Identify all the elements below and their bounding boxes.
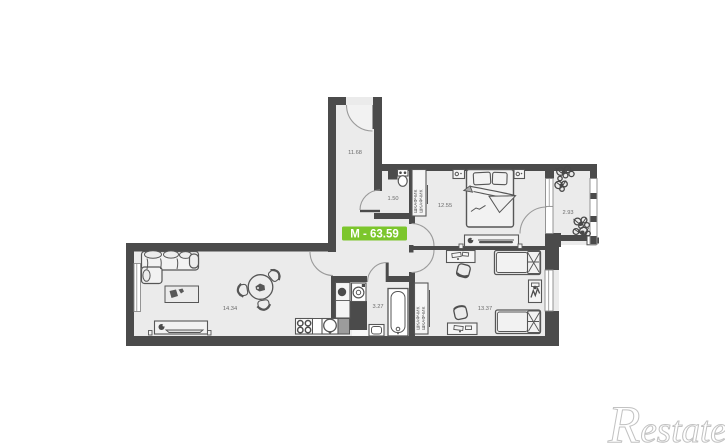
svg-text:1.50: 1.50 bbox=[387, 196, 398, 202]
svg-text:12.55: 12.55 bbox=[438, 203, 452, 209]
svg-text:ШКАФЧИК: ШКАФЧИК bbox=[419, 189, 424, 213]
svg-text:2.93: 2.93 bbox=[562, 210, 573, 216]
svg-text:ШКАФЧИК: ШКАФЧИК bbox=[421, 306, 426, 330]
svg-text:3.27: 3.27 bbox=[372, 304, 383, 310]
svg-text:ШКАФЧИК: ШКАФЧИК bbox=[413, 189, 418, 213]
svg-text:13.37: 13.37 bbox=[478, 306, 492, 312]
svg-text:ШКАФЧИК: ШКАФЧИК bbox=[416, 306, 421, 330]
svg-text:11.68: 11.68 bbox=[348, 150, 362, 156]
svg-text:14.34: 14.34 bbox=[223, 306, 237, 312]
svg-text:M - 63.59: M - 63.59 bbox=[350, 228, 399, 240]
